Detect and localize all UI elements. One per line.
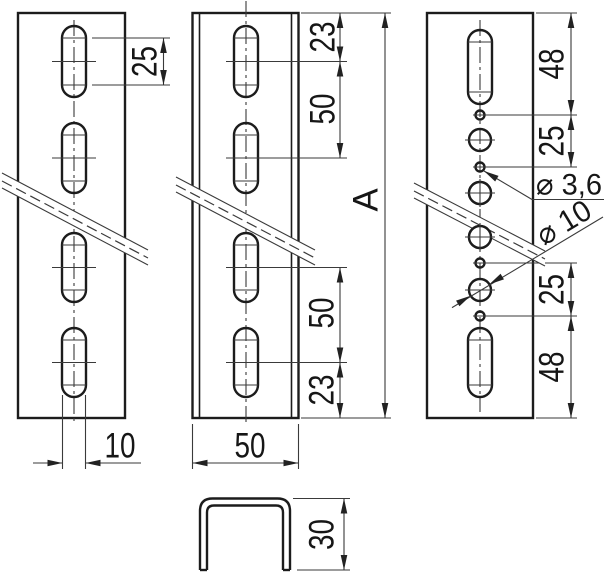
technical-drawing: 25 10 23 50 50 23 A [0, 0, 606, 576]
dimension-arrow [568, 13, 575, 28]
dimension-arrow [568, 403, 575, 418]
dim-hole-bottom-offset-label: 48 [533, 352, 572, 383]
drawing-canvas: 25 10 23 50 50 23 A [0, 0, 606, 576]
dimension-arrow [48, 460, 63, 467]
dimension-arrow [337, 348, 344, 363]
dimension-arrow [568, 316, 575, 331]
dimension-arrow [341, 555, 348, 570]
dim-lower-hole-pitch-label: 25 [533, 274, 572, 305]
dimension-arrow [341, 499, 348, 514]
dim-lower-pitch-label: 50 [303, 298, 342, 329]
dimension-arrow [382, 13, 389, 28]
large-hole-diameter-label: ⌀ 10 [531, 194, 598, 252]
middle-rail-view [193, 1, 299, 424]
dim-bottom-offset-label: 23 [303, 375, 342, 406]
dimension-arrow [284, 460, 299, 467]
dim-width-label: 50 [235, 427, 266, 466]
cross-section-view [200, 499, 290, 571]
dimension-arrow [382, 403, 389, 418]
dim-section-height-label: 30 [303, 519, 342, 550]
dim-upper-pitch-label: 50 [304, 94, 343, 125]
dimension-arrow [568, 100, 575, 115]
dimension-arrow [337, 268, 344, 283]
dimension-arrow [86, 460, 101, 467]
dim-slot-length-label: 25 [126, 46, 165, 77]
dimension-arrow [337, 62, 344, 77]
small-hole-diameter-label: ⌀ 3,6 [536, 169, 602, 202]
section-outer-profile [200, 499, 290, 571]
section-inner-profile [207, 506, 283, 571]
dimensions: 25 10 23 50 50 23 A [33, 13, 577, 570]
dimension-arrow [337, 143, 344, 158]
dim-top-offset-label: 23 [304, 22, 343, 53]
leader-arrow [482, 168, 498, 181]
dim-slot-width-label: 10 [105, 427, 136, 466]
dim-hole-top-offset-label: 48 [533, 49, 572, 80]
dim-overall-length-label: A [347, 188, 386, 212]
right-rail-view [427, 13, 533, 418]
dim-upper-hole-pitch-label: 25 [533, 126, 572, 157]
dimension-arrow [193, 460, 208, 467]
